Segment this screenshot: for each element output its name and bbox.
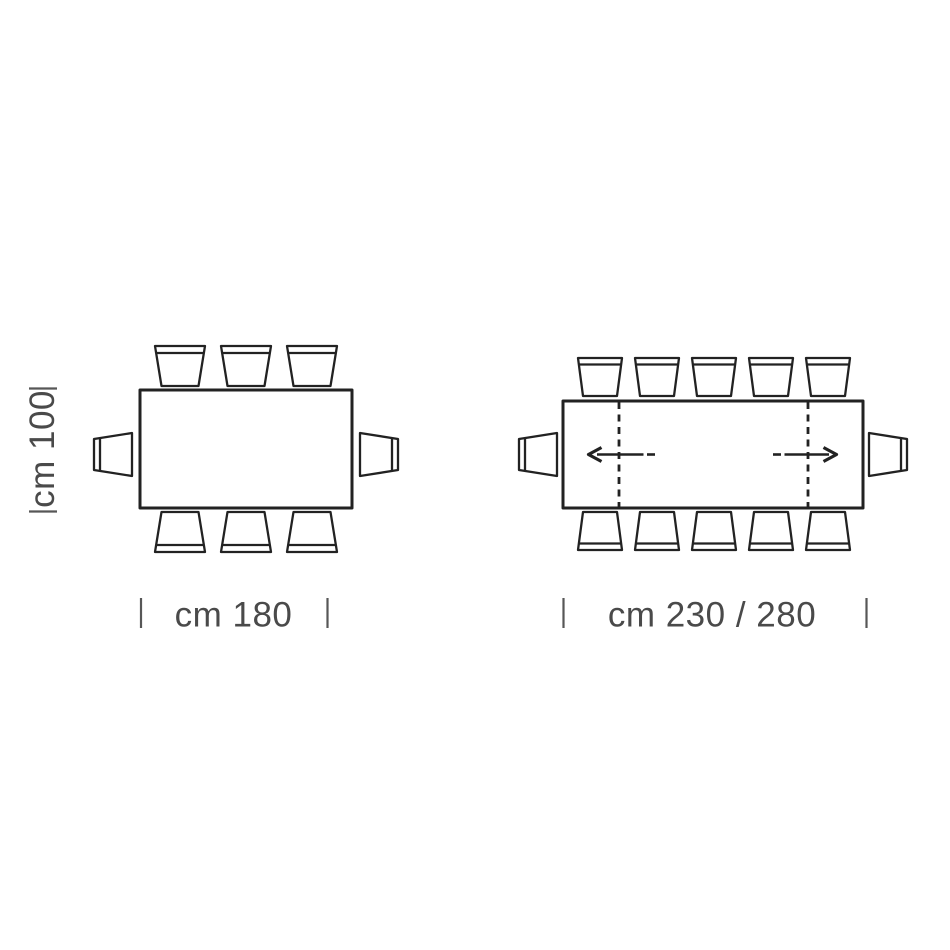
diagram-extendable-table: cm 230 / 280 xyxy=(519,358,907,635)
chair-top-4 xyxy=(749,358,793,396)
chair-right xyxy=(869,433,907,476)
chair-bottom-5 xyxy=(806,512,850,550)
chair-top-2 xyxy=(221,346,271,386)
chair-top-3 xyxy=(692,358,736,396)
extension-arrow-right xyxy=(773,448,837,462)
extension-arrow-left xyxy=(589,448,656,462)
chair-bottom-2 xyxy=(635,512,679,550)
chair-top-1 xyxy=(155,346,205,386)
chair-bottom-3 xyxy=(692,512,736,550)
dimension-diagram-svg: cm 100 xyxy=(0,0,950,950)
table-size-figure: cm 100 xyxy=(0,0,950,950)
chair-left xyxy=(94,433,132,476)
chair-bottom-1 xyxy=(578,512,622,550)
chair-bottom-2 xyxy=(221,512,271,552)
width-dimension-label: cm 230 / 280 xyxy=(608,596,816,635)
chair-right xyxy=(360,433,398,476)
chair-top-5 xyxy=(806,358,850,396)
chair-top-1 xyxy=(578,358,622,396)
depth-dimension-label: cm 100 xyxy=(23,390,62,508)
chair-left xyxy=(519,433,557,476)
chair-bottom-4 xyxy=(749,512,793,550)
chair-bottom-3 xyxy=(287,512,337,552)
diagram-fixed-table: cm 100 xyxy=(23,346,398,635)
fixed-table-top xyxy=(140,390,352,508)
chair-top-3 xyxy=(287,346,337,386)
chair-bottom-1 xyxy=(155,512,205,552)
width-dimension-label: cm 180 xyxy=(175,596,293,635)
chair-top-2 xyxy=(635,358,679,396)
